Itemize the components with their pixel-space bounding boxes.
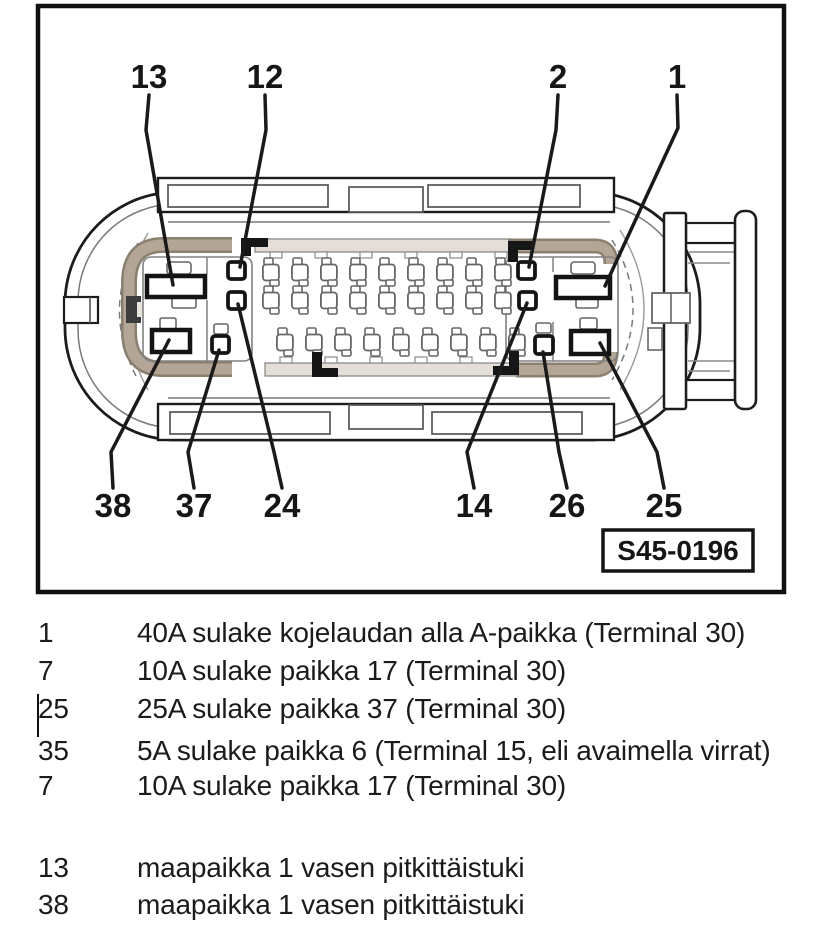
callout-14: 14 [456, 487, 493, 524]
legend-pin-number: 38 [38, 889, 69, 921]
connector-diagram: 13 12 2 1 38 37 24 14 26 25 S45-0196 [0, 0, 833, 600]
figure-code-box: S45-0196 [603, 530, 753, 571]
legend-description: 10A sulake paikka 17 (Terminal 30) [137, 770, 566, 802]
pin-24 [228, 292, 245, 309]
callout-25: 25 [646, 487, 683, 524]
legend-row: 35 5A sulake paikka 6 (Terminal 15, eli … [0, 735, 833, 773]
bottom-strip [158, 404, 614, 440]
legend-description: 10A sulake paikka 17 (Terminal 30) [137, 655, 566, 687]
legend-pin-number: 25 [38, 693, 69, 725]
legend-row: 13 maapaikka 1 vasen pitkittäistuki [0, 852, 833, 890]
pin-12 [228, 262, 245, 279]
pin-1 [556, 277, 610, 298]
callout-38: 38 [95, 487, 132, 524]
legend-row: 38 maapaikka 1 vasen pitkittäistuki [0, 889, 833, 927]
left-latch [64, 297, 98, 323]
legend-pin-number: 35 [38, 735, 69, 767]
legend-description: maapaikka 1 vasen pitkittäistuki [137, 852, 524, 884]
legend-pin-number: 7 [38, 770, 53, 802]
figure-code: S45-0196 [617, 535, 738, 566]
callout-1: 1 [668, 58, 686, 95]
legend-description: 5A sulake paikka 6 (Terminal 15, eli ava… [137, 735, 770, 767]
callout-13: 13 [131, 58, 168, 95]
pin-38 [152, 330, 190, 352]
legend-pin-number: 1 [38, 617, 53, 649]
page: 13 12 2 1 38 37 24 14 26 25 S45-0196 1 4… [0, 0, 833, 940]
callout-24: 24 [264, 487, 301, 524]
callout-12: 12 [247, 58, 284, 95]
legend-pin-number: 13 [38, 852, 69, 884]
pin-13 [147, 276, 205, 297]
legend-row: 7 10A sulake paikka 17 (Terminal 30) [0, 770, 833, 808]
legend-description: maapaikka 1 vasen pitkittäistuki [137, 889, 524, 921]
legend-row: 1 40A sulake kojelaudan alla A-paikka (T… [0, 617, 833, 655]
pin-14 [519, 292, 536, 309]
text-cursor[interactable] [37, 694, 39, 737]
callout-26: 26 [549, 487, 586, 524]
callout-37: 37 [176, 487, 213, 524]
legend-row: 25 25A sulake paikka 37 (Terminal 30) [0, 693, 833, 731]
connector-housing [65, 192, 700, 440]
pin-2 [518, 262, 535, 279]
callout-2: 2 [549, 58, 567, 95]
legend-description: 40A sulake kojelaudan alla A-paikka (Ter… [137, 617, 745, 649]
legend-pin-number: 7 [38, 655, 53, 687]
legend-row: 7 10A sulake paikka 17 (Terminal 30) [0, 655, 833, 693]
legend-description: 25A sulake paikka 37 (Terminal 30) [137, 693, 566, 725]
